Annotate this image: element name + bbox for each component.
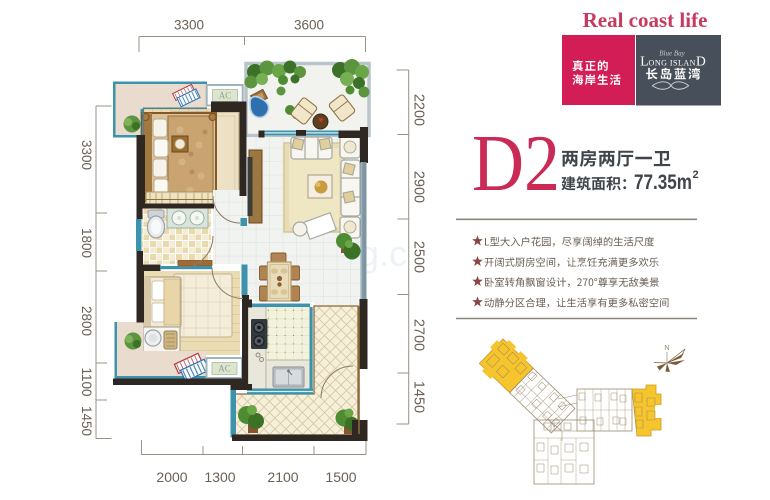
svg-text:1450: 1450 (79, 406, 94, 436)
svg-text:1450: 1450 (411, 381, 427, 413)
svg-text:2100: 2100 (267, 469, 298, 485)
svg-text:77.35m: 77.35m (634, 171, 692, 194)
svg-text:Blue Bay: Blue Bay (659, 50, 685, 58)
svg-text:AC: AC (218, 364, 231, 374)
svg-text:2: 2 (693, 169, 699, 181)
svg-text:N: N (664, 343, 669, 352)
svg-text:1800: 1800 (79, 228, 94, 258)
svg-text:1300: 1300 (204, 469, 235, 485)
svg-text:D2: D2 (472, 120, 560, 208)
svg-text:3300: 3300 (174, 18, 204, 33)
svg-text:2900: 2900 (411, 171, 427, 203)
svg-text:3600: 3600 (294, 18, 324, 33)
svg-text:1100: 1100 (79, 367, 94, 396)
svg-text:2700: 2700 (411, 319, 427, 351)
svg-text:AC: AC (219, 91, 232, 101)
svg-text:2200: 2200 (411, 94, 427, 126)
svg-text:2800: 2800 (79, 306, 94, 336)
svg-text:3300: 3300 (79, 140, 94, 170)
svg-text:2500: 2500 (411, 241, 427, 273)
svg-text:1500: 1500 (325, 469, 356, 485)
svg-text:2000: 2000 (156, 469, 187, 485)
svg-text:Real coast life: Real coast life (583, 8, 708, 32)
